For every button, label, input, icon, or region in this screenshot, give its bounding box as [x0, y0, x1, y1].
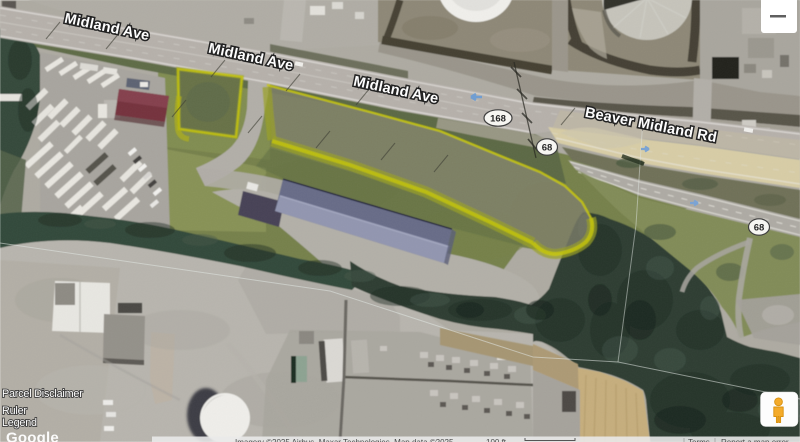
svg-text:Imagery ©2025 Airbus, Maxar Te: Imagery ©2025 Airbus, Maxar Technologies… — [235, 438, 454, 442]
svg-text:Google: Google — [6, 430, 59, 442]
svg-text:Legend: Legend — [2, 417, 37, 429]
svg-text:Terms: Terms — [688, 438, 710, 442]
svg-text:Ruler: Ruler — [2, 405, 27, 417]
svg-text:100 ft: 100 ft — [486, 438, 507, 442]
svg-text:Parcel Disclaimer: Parcel Disclaimer — [2, 388, 83, 400]
svg-text:Report a map error: Report a map error — [721, 438, 789, 442]
